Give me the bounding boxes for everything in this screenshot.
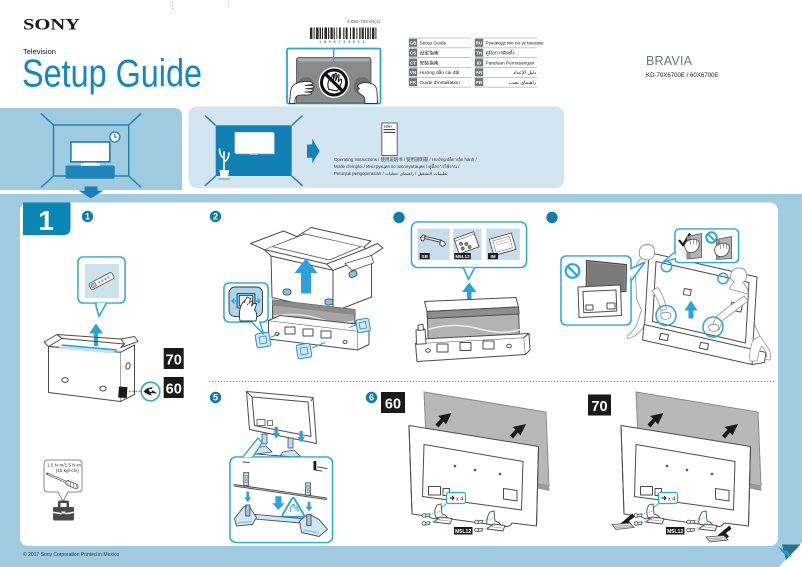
svg-text:KD-70X6700E / 60X6700E: KD-70X6700E / 60X6700E: [646, 72, 719, 79]
svg-text:4-696-733-01(1): 4-696-733-01(1): [347, 19, 381, 24]
svg-text:1.5 N·m/1.5 N·m: 1.5 N·m/1.5 N·m: [47, 463, 81, 468]
svg-text:设定指南: 设定指南: [420, 50, 439, 57]
svg-text:6: 6: [369, 393, 374, 403]
svg-text:TH: TH: [476, 51, 483, 56]
svg-text:安裝指南: 安裝指南: [420, 59, 439, 66]
svg-text:{15 kgf·cm}: {15 kgf·cm}: [56, 468, 80, 473]
svg-text:VN: VN: [410, 70, 417, 75]
svg-text:Руководство по установке: Руководство по установке: [486, 40, 545, 46]
svg-text:Petunjuk pengoperasian / تعليم: Petunjuk pengoperasian / تعليمات التشغيل…: [334, 171, 448, 176]
svg-text:Guide d'installation: Guide d'installation: [420, 80, 461, 86]
svg-text:FR: FR: [410, 80, 417, 85]
svg-text:AR: AR: [476, 70, 483, 75]
svg-text:70: 70: [166, 353, 182, 369]
svg-text:راهنمای نصب: راهنمای نصب: [509, 80, 537, 86]
svg-text:Mode d'emploi / Инструкция по: Mode d'emploi / Инструкция по эксплуатац…: [334, 163, 460, 170]
svg-text:Panduan Pemasangan: Panduan Pemasangan: [486, 60, 535, 66]
svg-text:2: 2: [213, 212, 218, 222]
svg-text:دليل الإعداد: دليل الإعداد: [513, 70, 536, 76]
svg-text:60: 60: [385, 397, 401, 413]
svg-text:70: 70: [591, 399, 607, 415]
svg-text:CS: CS: [410, 51, 416, 56]
svg-text:x 4: x 4: [456, 497, 463, 503]
svg-text:Setup Guide: Setup Guide: [420, 40, 447, 46]
svg-text:M5L12: M5L12: [455, 529, 471, 535]
svg-text:1: 1: [38, 205, 54, 236]
svg-text:PR: PR: [476, 80, 483, 85]
svg-text:Operating Instructions / 使用说明书: Operating Instructions / 使用说明书 / 使用說明書 /…: [334, 156, 477, 163]
svg-text:1: 1: [85, 212, 90, 222]
svg-text:IM: IM: [490, 254, 495, 259]
svg-text:CT: CT: [410, 60, 416, 65]
svg-text:BRAVIA: BRAVIA: [646, 54, 694, 68]
svg-text:60: 60: [166, 382, 182, 398]
svg-text:ID: ID: [477, 60, 482, 65]
svg-text:5: 5: [213, 393, 218, 403]
svg-text:GB: GB: [410, 41, 418, 46]
svg-text:SONY: SONY: [23, 17, 80, 34]
svg-text:1896733011: 1896733011: [319, 39, 367, 44]
svg-text:© 2017 Sony Corporation Print: © 2017 Sony Corporation Printed in Mexic…: [23, 551, 119, 558]
svg-text:RU: RU: [476, 41, 483, 46]
svg-text:M5L12: M5L12: [455, 254, 470, 259]
svg-text:SB: SB: [422, 254, 429, 259]
svg-text:Setup Guide: Setup Guide: [22, 53, 202, 96]
svg-text:Hướng dẫn cài đặt: Hướng dẫn cài đặt: [420, 69, 461, 76]
svg-text:SONY: SONY: [384, 125, 393, 129]
